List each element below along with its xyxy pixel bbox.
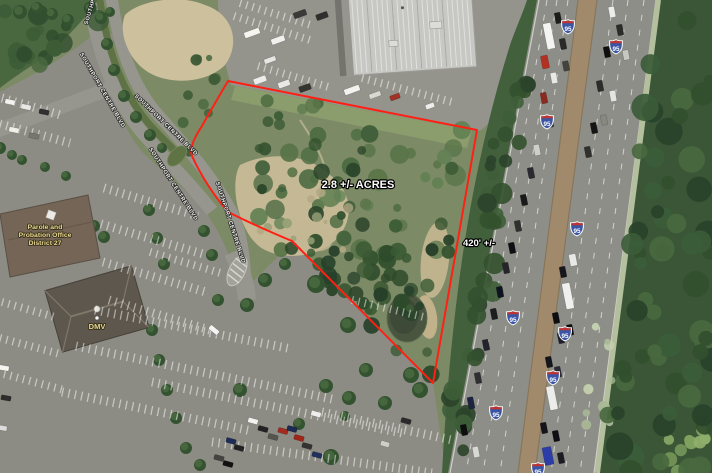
vegetation-blob — [46, 40, 63, 57]
rooftop-unit — [389, 40, 398, 47]
vegetation-blob — [392, 270, 409, 287]
forest-blob — [652, 453, 669, 470]
vegetation-blob — [287, 167, 297, 177]
tree-highlight — [294, 419, 301, 426]
vegetation-blob — [581, 420, 591, 430]
tree-highlight — [213, 295, 220, 302]
tree-highlight — [32, 3, 39, 10]
forest-blob — [651, 205, 664, 218]
vegetation-blob — [360, 199, 371, 210]
tree-highlight — [17, 155, 23, 161]
forest-blob — [635, 349, 650, 364]
vegetation-blob — [467, 305, 486, 324]
vegetation-blob — [426, 243, 439, 256]
forest-blob — [647, 344, 661, 358]
forest-blob — [645, 148, 665, 168]
tree-highlight — [199, 226, 206, 233]
vegetation-blob — [443, 381, 463, 401]
vegetation-blob — [404, 286, 414, 296]
vegetation-blob — [16, 46, 32, 62]
vegetation-blob — [278, 184, 286, 192]
vegetation-blob — [206, 55, 212, 61]
vegetation-blob — [467, 351, 483, 367]
vegetation-blob — [363, 317, 380, 334]
vegetation-blob — [486, 155, 496, 165]
forest-blob — [678, 11, 697, 30]
forest-blob — [678, 146, 705, 173]
tree-highlight — [63, 15, 70, 22]
tree-highlight — [379, 397, 388, 406]
tree-highlight — [159, 259, 166, 266]
vegetation-blob — [583, 384, 593, 394]
vegetation-blob — [344, 252, 353, 261]
vegetation-blob — [263, 116, 274, 127]
vegetation-blob — [477, 193, 496, 212]
forest-blob — [671, 88, 694, 111]
vegetation-blob — [445, 162, 458, 175]
forest-blob — [615, 360, 632, 377]
tree-highlight — [195, 460, 202, 467]
vegetation-blob — [346, 163, 360, 177]
vegetation-blob — [355, 217, 369, 231]
forest-blob — [681, 233, 703, 255]
aerial-imagery: 95 — [0, 0, 712, 473]
warehouse-building — [334, 0, 477, 76]
forest-blob — [672, 108, 688, 124]
dmv-label: DMV — [89, 322, 106, 331]
tree-highlight — [343, 392, 352, 401]
vegetation-blob — [583, 409, 590, 416]
vegetation-blob — [435, 218, 448, 231]
frontage-label: 420' +/- — [463, 238, 495, 249]
forest-blob — [631, 94, 658, 121]
vegetation-blob — [274, 111, 283, 120]
acreage-label: 2.8 +/- ACRES — [322, 179, 395, 191]
vegetation-blob — [307, 237, 314, 244]
tree-highlight — [105, 7, 111, 13]
vegetation-blob — [443, 235, 454, 246]
vegetation-blob — [339, 246, 346, 253]
vegetation-blob — [307, 249, 315, 257]
tree-highlight — [145, 130, 152, 137]
vegetation-blob — [198, 99, 209, 110]
vegetation-blob — [178, 117, 189, 128]
vegetation-blob — [323, 220, 327, 224]
vegetation-blob — [442, 245, 456, 259]
forest-blob — [678, 385, 701, 408]
forest-blob — [641, 54, 661, 74]
tree-highlight — [157, 143, 163, 149]
vegetation-blob — [420, 279, 434, 293]
vegetation-blob — [255, 160, 270, 175]
vegetation-blob — [432, 177, 443, 188]
vegetation-blob — [282, 218, 292, 228]
vegetation-blob — [261, 94, 274, 107]
vegetation-blob — [183, 90, 193, 100]
dmv-poi-dot — [95, 316, 99, 320]
tree-highlight — [61, 171, 67, 177]
vegetation-blob — [422, 347, 432, 357]
vegetation-blob — [356, 241, 373, 258]
tree-highlight — [241, 299, 250, 308]
tree-highlight — [47, 9, 54, 16]
vegetation-blob — [389, 219, 402, 232]
tree-highlight — [40, 162, 46, 168]
vegetation-blob — [209, 74, 220, 85]
vegetation-blob — [484, 253, 505, 274]
vegetation-blob — [321, 255, 336, 270]
vegetation-blob — [274, 119, 285, 130]
vegetation-blob — [420, 172, 430, 182]
tree-highlight — [181, 443, 188, 450]
interstate-95-shield-icon — [531, 462, 545, 473]
forest-blob — [621, 233, 643, 255]
vegetation-blob — [26, 27, 40, 41]
vegetation-blob — [357, 146, 366, 155]
vegetation-blob — [511, 96, 524, 109]
vegetation-blob — [344, 203, 354, 213]
forest-blob — [611, 406, 625, 420]
forest-blob — [606, 432, 634, 460]
forest-blob — [682, 363, 702, 383]
forest-blob — [667, 214, 687, 234]
tree-highlight — [96, 13, 103, 20]
vegetation-blob — [255, 144, 264, 153]
tree-highlight — [259, 274, 268, 283]
vegetation-blob — [675, 444, 687, 456]
satellite-map[interactable]: 95 — [0, 0, 712, 473]
vegetation-blob — [498, 126, 514, 142]
vegetation-blob — [280, 144, 298, 162]
vegetation-blob — [499, 154, 512, 167]
parole-office-label: District 27 — [29, 240, 62, 247]
tree-highlight — [280, 259, 287, 266]
parole-office-label: Parole and — [28, 224, 63, 231]
vegetation-blob — [336, 231, 351, 246]
tree-highlight — [405, 369, 415, 379]
tree-highlight — [414, 384, 424, 394]
vegetation-blob — [390, 145, 409, 164]
vegetation-blob — [309, 138, 322, 151]
vegetation-blob — [305, 98, 321, 114]
tree-highlight — [14, 6, 23, 15]
vegetation-blob — [457, 444, 469, 456]
vegetation-blob — [257, 184, 267, 194]
vegetation-blob — [604, 339, 610, 345]
vegetation-blob — [347, 272, 360, 285]
forest-blob — [686, 177, 711, 202]
vegetation-blob — [285, 242, 298, 255]
vegetation-blob — [608, 377, 615, 384]
parole-office-label: Probation Office — [19, 232, 72, 239]
tree-highlight — [320, 380, 329, 389]
forest-blob — [644, 182, 661, 199]
vegetation-blob — [512, 135, 527, 150]
forest-blob — [649, 236, 674, 261]
vegetation-blob — [488, 138, 500, 150]
forest-blob — [632, 143, 648, 159]
vegetation-blob — [453, 121, 471, 139]
forest-blob — [683, 271, 709, 297]
vegetation-blob — [374, 287, 388, 301]
tree-highlight — [234, 384, 243, 393]
vegetation-blob — [684, 435, 694, 445]
vegetation-blob — [307, 195, 315, 203]
vegetation-blob — [502, 111, 517, 126]
vegetation-blob — [313, 164, 329, 180]
vegetation-blob — [337, 211, 346, 220]
tree-highlight — [309, 277, 320, 288]
tree-highlight — [102, 39, 109, 46]
vegetation-blob — [381, 273, 391, 283]
tree-highlight — [131, 112, 138, 119]
tree-highlight — [7, 150, 13, 156]
tree-highlight — [360, 364, 369, 373]
vegetation-blob — [390, 247, 399, 256]
forest-blob — [661, 176, 675, 190]
vegetation-blob — [312, 212, 322, 222]
forest-blob — [627, 300, 648, 321]
tree-highlight — [109, 65, 116, 72]
vegetation-blob — [195, 55, 201, 61]
vegetation-blob — [265, 200, 284, 219]
forest-blob — [634, 257, 647, 270]
vegetation-blob — [520, 77, 536, 93]
forest-blob — [662, 406, 677, 421]
rooftop-unit — [430, 21, 442, 29]
vegetation-blob — [415, 302, 423, 310]
vegetation-blob — [393, 204, 401, 212]
forest-blob — [693, 344, 709, 360]
vegetation-blob — [468, 287, 488, 307]
tree-highlight — [207, 250, 214, 257]
vegetation-blob — [329, 246, 340, 257]
tree-highlight — [144, 205, 151, 212]
vegetation-blob — [31, 56, 47, 72]
vegetation-blob — [487, 215, 502, 230]
vegetation-blob — [361, 125, 379, 143]
vegetation-blob — [592, 323, 600, 331]
vegetation-blob — [17, 34, 28, 45]
tree-highlight — [342, 319, 352, 329]
tree-highlight — [119, 91, 126, 98]
tree-highlight — [99, 232, 106, 239]
